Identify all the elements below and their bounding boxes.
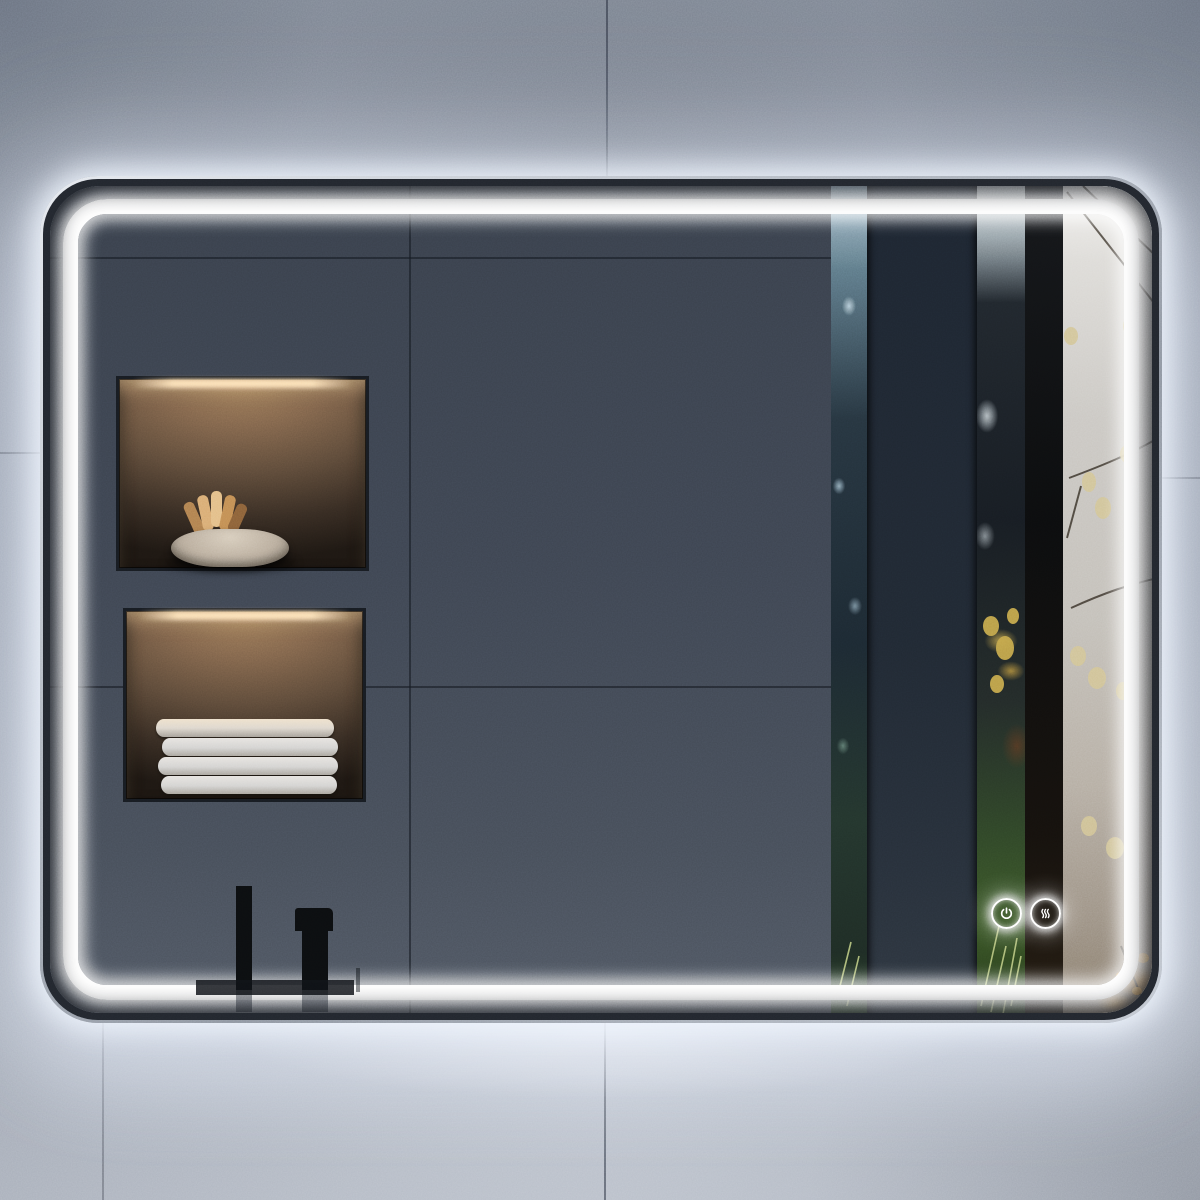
wall-niche-lower: [123, 608, 366, 802]
reflected-grout-line: [50, 257, 831, 259]
power-icon: [999, 905, 1014, 922]
power-button[interactable]: [991, 898, 1022, 929]
faucet-spout: [295, 908, 333, 931]
mirror-bezel: [43, 179, 1159, 1020]
towel: [161, 776, 337, 794]
defogger-icon: [1038, 905, 1053, 922]
mirror-frame: [40, 176, 1162, 1023]
towel: [162, 738, 338, 756]
niche-light-strip: [134, 379, 351, 388]
counter-edge-shadow-faint: [356, 968, 360, 992]
tile-grout-line: [1162, 477, 1200, 479]
mirror-glass: [50, 186, 1152, 1013]
niche-light-strip: [140, 611, 349, 620]
tile-grout-line: [0, 452, 40, 454]
counter-edge-shadow: [196, 980, 354, 995]
forest-reflection: [831, 186, 1152, 1013]
defogger-button[interactable]: [1030, 898, 1061, 929]
towel: [158, 757, 338, 775]
reflected-grout-line: [409, 186, 411, 1013]
stone-bowl: [171, 529, 289, 567]
branches-and-leaves: [831, 186, 1152, 1013]
bathroom-scene: [0, 0, 1200, 1200]
touch-control-panel: [991, 898, 1071, 932]
tile-grout-line: [606, 0, 608, 176]
wall-niche-upper: [116, 376, 369, 571]
faucet-pipe: [236, 886, 252, 990]
towel: [156, 719, 334, 737]
